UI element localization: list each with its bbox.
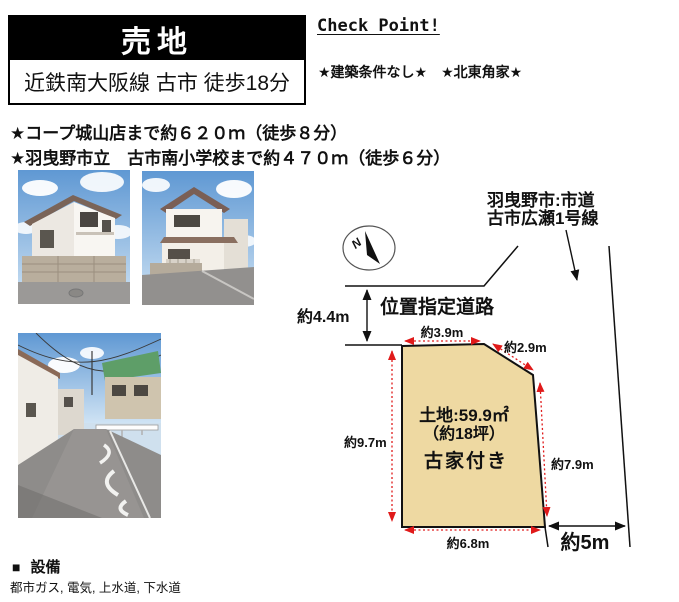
dim-corner-label: 約2.9m (504, 340, 547, 355)
house-exterior-corner-photo (18, 170, 130, 304)
front-road-width-label: 約4.4m (297, 307, 349, 326)
dim-corner-arrow (493, 344, 533, 370)
house-front-illustration (142, 171, 254, 305)
city-road-line (609, 246, 630, 547)
flyer-page: 売地 近鉄南大阪線 古市 徒歩18分 Check Point! ★建築条件なし★… (0, 0, 679, 602)
plot-boundary-extension (545, 527, 548, 547)
compass-n-label: N (349, 235, 365, 252)
dim-left-label: 約9.7m (344, 435, 387, 450)
house-corner-illustration (18, 170, 130, 304)
check-point-title: Check Point! (317, 16, 440, 36)
side-road-width-label: 約5m (561, 530, 610, 554)
house-exterior-front-photo (142, 171, 254, 305)
facilities-heading: ■設備 (12, 556, 60, 577)
title-box: 売地 近鉄南大阪線 古市 徒歩18分 (8, 15, 306, 105)
designated-road-upper-line (345, 246, 518, 286)
facilities-heading-label: 設備 (30, 559, 60, 576)
designated-road-label: 位置指定道路 (380, 295, 495, 318)
plot-area-label: 土地:59.9㎡ (419, 405, 509, 425)
square-bullet-icon: ■ (12, 559, 20, 575)
highlight-coop-distance: ★コープ城山店まで約６２０ｍ（徒歩８分） (10, 119, 347, 144)
facilities-items: 都市ガス, 電気, 上水道, 下水道 (10, 577, 181, 596)
check-point-items: ★建築条件なし★ ★北東角家★ (318, 62, 522, 82)
land-plot-shape (402, 344, 545, 527)
street-illustration (18, 333, 161, 518)
highlight-school-distance: ★羽曳野市立 古市南小学校まで約４７０ｍ（徒歩６分） (10, 144, 450, 169)
city-road-name-line2: 古市広瀬1号線 (487, 208, 598, 228)
city-road-name-line1: 羽曳野市:市道 (487, 190, 595, 210)
dim-top-label: 約3.9m (421, 325, 464, 340)
plot-note-label: 古家付き (424, 449, 508, 472)
city-road-pointer-arrow (566, 230, 577, 280)
north-compass: N (343, 226, 395, 270)
dim-bottom-label: 約6.8m (447, 536, 490, 551)
sale-type-banner: 売地 (10, 17, 304, 60)
sale-type-label: 売地 (121, 17, 193, 61)
access-label: 近鉄南大阪線 古市 徒歩18分 (24, 67, 290, 97)
front-street-photo (18, 333, 161, 518)
access-banner: 近鉄南大阪線 古市 徒歩18分 (10, 60, 304, 103)
dim-right-label: 約7.9m (551, 457, 594, 472)
dim-right-arrow (540, 383, 547, 516)
plot-tsubo-label: （約18坪） (423, 424, 505, 443)
compass-needle (365, 231, 380, 264)
